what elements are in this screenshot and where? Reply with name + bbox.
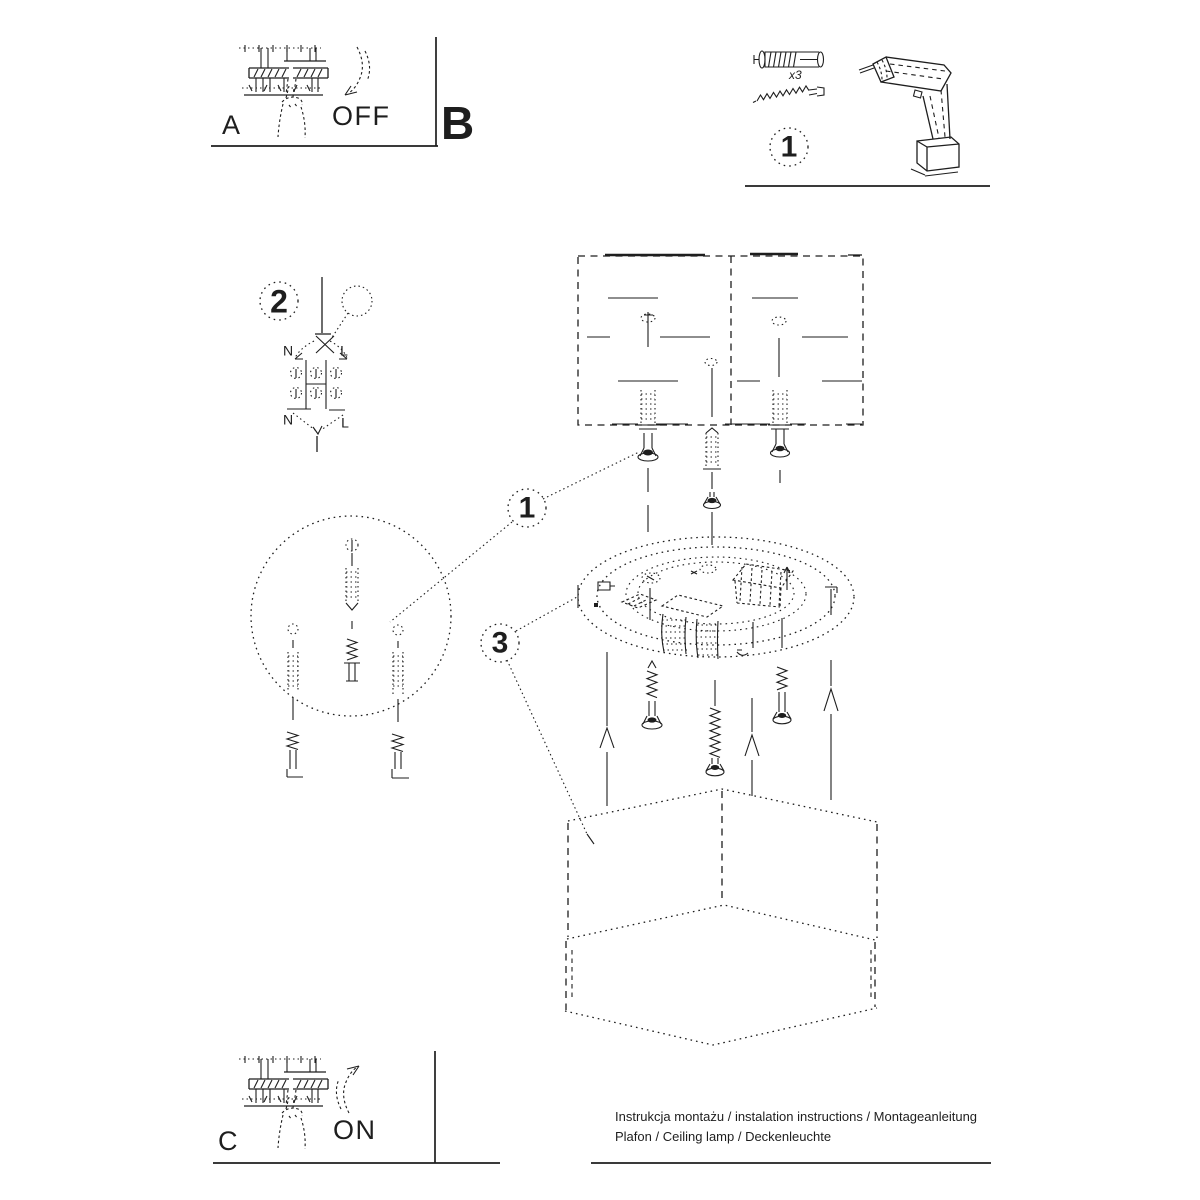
off-arrow-icon	[345, 47, 370, 95]
magnifier-icon	[331, 286, 372, 339]
wiring-diagram	[287, 277, 347, 452]
step-1-number: 1	[781, 132, 798, 162]
detail-circle	[251, 516, 451, 716]
fusebox-hand-on-icon	[239, 1056, 328, 1149]
panel-c-border	[213, 1051, 500, 1163]
bracket-screws	[287, 732, 409, 778]
terminal-label-n-top: N	[283, 344, 293, 358]
terminal-label-l-top: L	[340, 344, 348, 358]
footer-title-line: Instrukcja montażu / instalation instruc…	[615, 1110, 977, 1123]
wall-plug-icon	[754, 51, 824, 68]
callout-leader-lines	[390, 452, 639, 844]
diagram-canvas	[0, 0, 1200, 1200]
terminal-label-n-bottom: N	[283, 413, 293, 427]
callout-1-number: 1	[519, 493, 536, 523]
mounting-plate	[578, 537, 854, 659]
switch-on-label: ON	[333, 1117, 377, 1144]
fusebox-hand-off-icon	[239, 45, 328, 138]
ceiling-section	[578, 254, 863, 545]
on-arrow-icon	[336, 1066, 359, 1113]
panel-a-border	[211, 37, 438, 146]
screw-icon	[753, 86, 824, 103]
switch-off-label: OFF	[332, 103, 391, 130]
plug-detail	[288, 539, 403, 722]
panel-b-label: B	[441, 100, 474, 146]
assembly-arrows	[600, 652, 838, 806]
drill-icon	[859, 57, 959, 176]
instruction-sheet: A OFF B x3 1 2 1 3 N L N L C ON Instrukc…	[0, 0, 1200, 1200]
footer-product-line: Plafon / Ceiling lamp / Deckenleuchte	[615, 1130, 831, 1143]
terminal-label-l-bottom: L	[341, 416, 349, 430]
panel-a-label: A	[222, 112, 240, 139]
callout-3-number: 3	[492, 628, 509, 658]
plug-quantity-label: x3	[789, 69, 802, 81]
panel-c-label: C	[218, 1128, 238, 1155]
mounting-screws	[642, 661, 791, 776]
step-2-number: 2	[270, 285, 288, 317]
hexagonal-shade	[565, 789, 877, 1045]
